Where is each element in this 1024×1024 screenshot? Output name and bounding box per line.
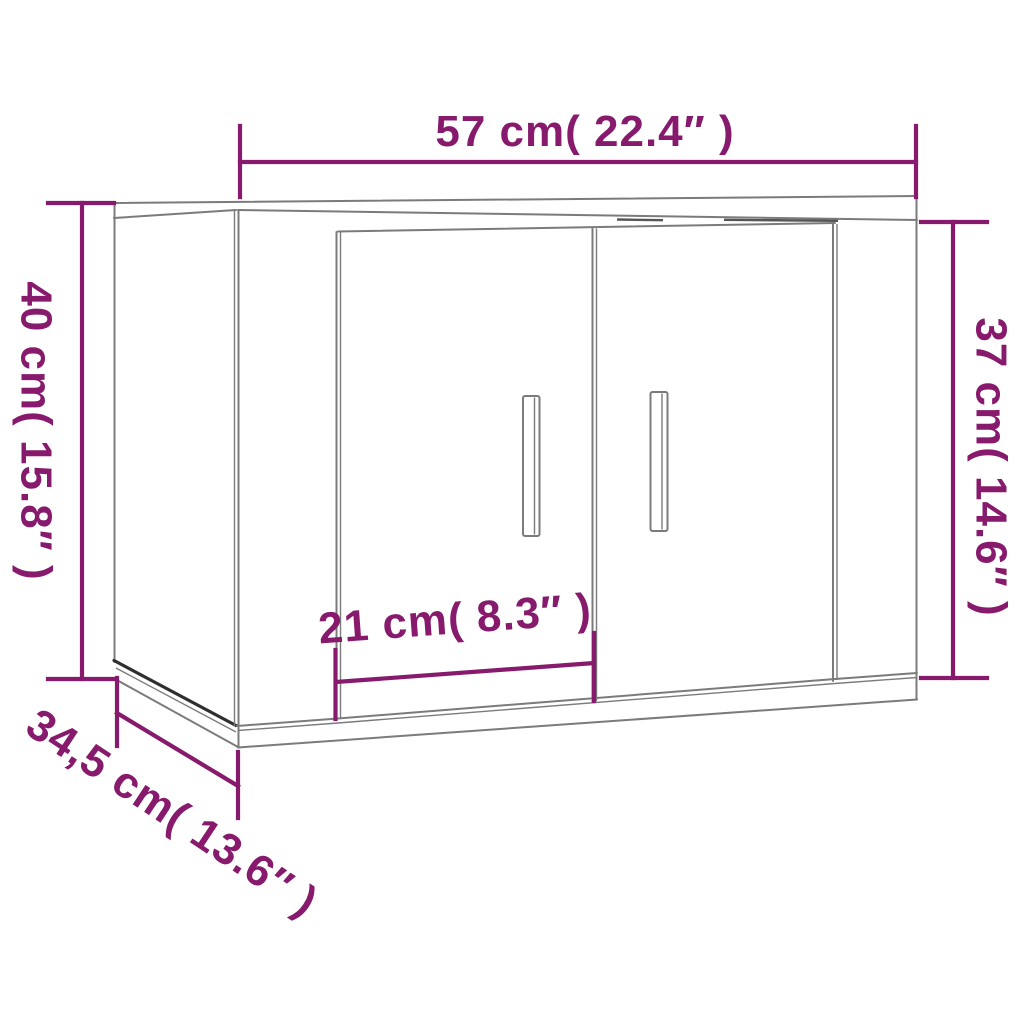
- top-edge-shade-dash: [617, 220, 663, 221]
- dimension-width-top: 57 cm( 22.4″ ): [240, 107, 916, 197]
- cabinet-doors: [237, 223, 917, 731]
- handle-bar: [523, 396, 540, 536]
- handle-bar: [651, 392, 668, 531]
- side-panel-bottom-outer-edge: [115, 679, 238, 747]
- front-top-edge: [238, 210, 917, 220]
- depth-label: 34,5 cm( 13.6″ ): [18, 699, 327, 926]
- door-width-label: 21 cm( 8.3″ ): [317, 585, 594, 654]
- product-dimension-diagram: 57 cm( 22.4″ ) 40 cm( 15.8″ ) 37 cm( 14.…: [0, 0, 1024, 1024]
- right-door: [651, 224, 838, 681]
- side-panel-top-edge: [114, 210, 236, 218]
- right-door-handle-icon: [651, 392, 668, 531]
- left-door-handle-icon: [523, 396, 540, 536]
- cabinet-left-side-panel: [114, 203, 238, 747]
- dimension-height-right: 37 cm( 14.6″ ): [921, 222, 1016, 678]
- width-top-label: 57 cm( 22.4″ ): [435, 107, 734, 156]
- cabinet-front-left-corner: [235, 211, 239, 748]
- dimension-depth: 34,5 cm( 13.6″ ): [18, 678, 327, 927]
- height-right-label: 37 cm( 14.6″ ): [967, 317, 1016, 616]
- cabinet-drawing: [114, 196, 917, 748]
- doors-top-edge: [338, 223, 835, 232]
- dimension-door-width: 21 cm( 8.3″ ): [317, 585, 594, 719]
- top-edge-shade-dash: [724, 220, 838, 221]
- height-left-label: 40 cm( 15.8″ ): [12, 281, 61, 580]
- dimension-diagram-canvas: 57 cm( 22.4″ ) 40 cm( 15.8″ ) 37 cm( 14.…: [0, 0, 1024, 1024]
- side-panel-bottom-dark-edge: [114, 661, 236, 726]
- top-outer-edge: [114, 196, 917, 203]
- dimension-height-left: 40 cm( 15.8″ ): [12, 203, 115, 679]
- dimension-line: [336, 663, 594, 682]
